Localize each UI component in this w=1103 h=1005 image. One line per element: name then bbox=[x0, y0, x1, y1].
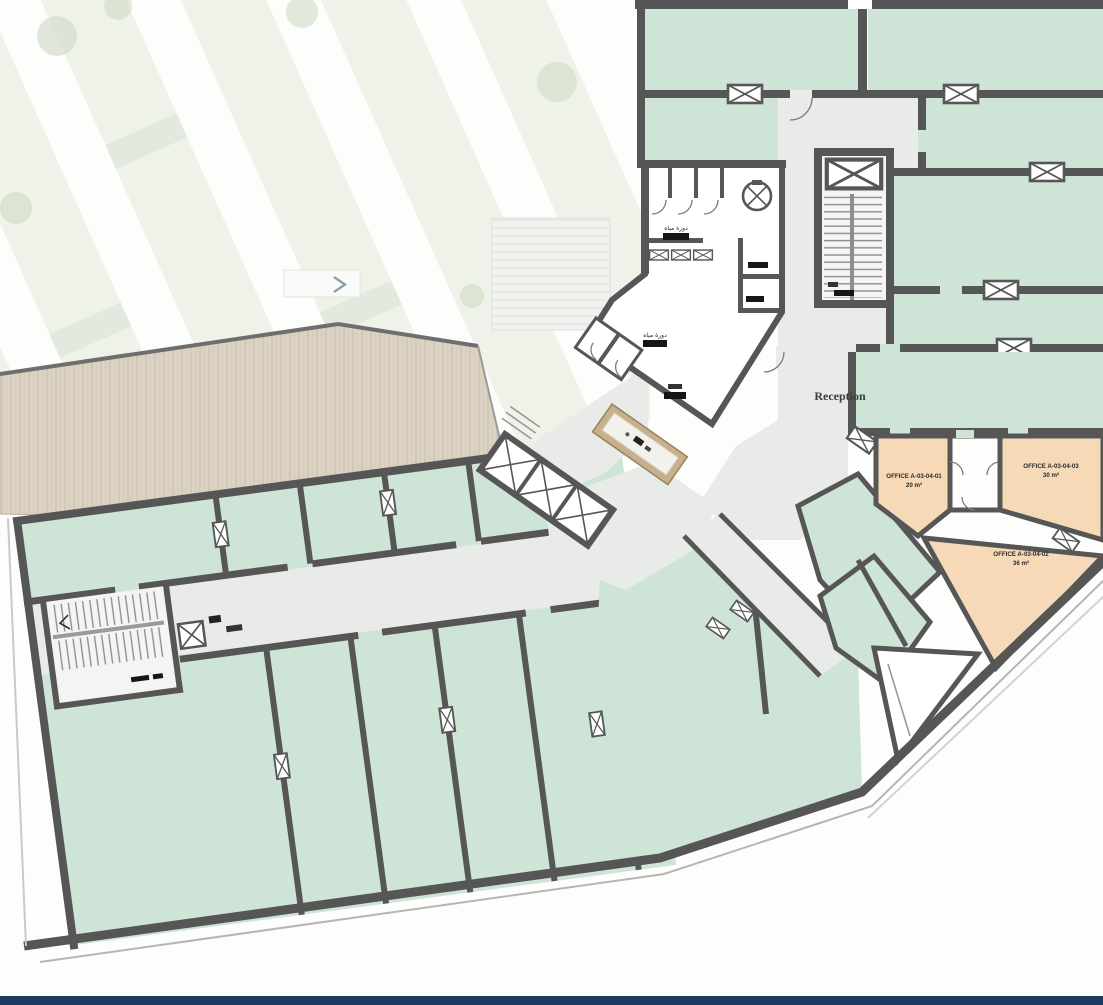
room bbox=[856, 352, 1103, 428]
sink-symbol bbox=[650, 250, 669, 260]
plaza-chevron bbox=[284, 270, 360, 297]
reception-label: Reception bbox=[814, 389, 866, 403]
shaft-symbol bbox=[728, 85, 762, 103]
office-2-area: 36 m² bbox=[1013, 560, 1029, 567]
room bbox=[868, 8, 1103, 90]
office-a-03-04-03 bbox=[1000, 436, 1103, 540]
sink-symbol bbox=[694, 250, 713, 260]
left-stairwell bbox=[40, 583, 183, 709]
office-1-area: 20 m² bbox=[906, 482, 922, 489]
office-3-name: OFFICE A-03-04-03 bbox=[1023, 463, 1079, 470]
office-1-name: OFFICE A-03-04-01 bbox=[886, 473, 942, 480]
shaft-symbol bbox=[380, 490, 396, 516]
wc-label-1: دورة مياه bbox=[664, 225, 688, 232]
floor-plan: Reception OFFICE A-03-04-01 20 m² OFFICE… bbox=[0, 0, 1103, 1005]
office-vestibule bbox=[950, 430, 1000, 510]
shaft-symbol bbox=[213, 521, 229, 547]
shaft-symbol bbox=[439, 707, 455, 733]
wc-label-2: دورة مياه bbox=[643, 332, 667, 339]
north-stairwell bbox=[814, 148, 894, 308]
sink-symbol bbox=[672, 250, 691, 260]
room bbox=[645, 8, 858, 90]
room bbox=[926, 98, 1103, 168]
room bbox=[645, 98, 778, 160]
elevator-shaft-symbol bbox=[827, 160, 881, 189]
void-notch bbox=[874, 648, 978, 760]
office-2-name: OFFICE A-03-04-02 bbox=[993, 551, 1049, 558]
office-3-area: 30 m² bbox=[1043, 472, 1059, 479]
bottom-center-rooms bbox=[588, 540, 862, 868]
accessible-wc bbox=[743, 180, 771, 210]
shaft-symbol bbox=[274, 753, 290, 779]
bottom-accent-bar bbox=[0, 996, 1103, 1005]
shaft-symbol bbox=[944, 85, 978, 103]
floor-plan-page: Reception OFFICE A-03-04-01 20 m² OFFICE… bbox=[0, 0, 1103, 1005]
shaft-symbol bbox=[1030, 163, 1064, 181]
shaft-symbol bbox=[984, 281, 1018, 299]
room bbox=[894, 294, 1103, 344]
shaft-symbol bbox=[178, 621, 206, 649]
shaft-symbol bbox=[589, 711, 605, 736]
room bbox=[894, 176, 1103, 286]
